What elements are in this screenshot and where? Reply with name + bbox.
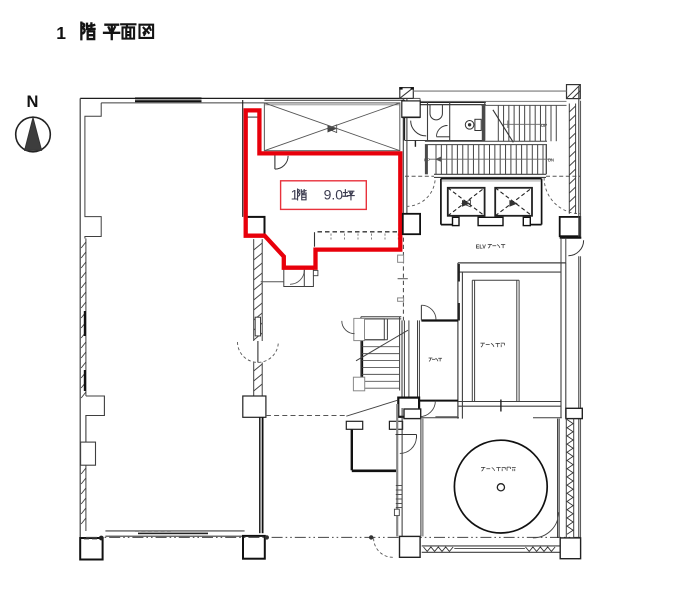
- svg-text:ELV: ELV: [476, 245, 486, 251]
- svg-text:N: N: [27, 93, 39, 111]
- svg-text:1: 1: [56, 23, 66, 43]
- svg-text:DN: DN: [548, 157, 554, 162]
- svg-text:UP: UP: [424, 157, 430, 162]
- svg-text:9.0: 9.0: [324, 187, 344, 203]
- svg-text:UP: UP: [541, 123, 547, 128]
